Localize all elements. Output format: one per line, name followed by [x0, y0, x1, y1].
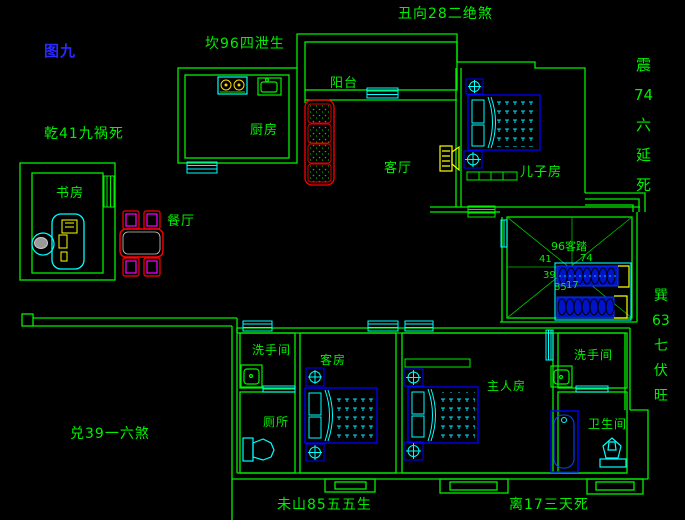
annotation-li: 离17三天死	[509, 498, 589, 512]
room-label-kitchen: 厨房	[250, 124, 278, 137]
stove	[218, 77, 247, 94]
master-bed	[408, 387, 478, 443]
figure-label: 图九	[44, 44, 76, 59]
chair	[144, 211, 160, 229]
washroom-top-window	[243, 321, 272, 331]
room-label-guest: 客房	[320, 354, 346, 366]
center-number-sw: 85	[554, 283, 567, 293]
study-chair	[32, 233, 54, 255]
roll-object	[557, 297, 614, 318]
annotation-zhen: 震 74 六 延 死	[634, 58, 653, 208]
room-label-balcony: 阳台	[330, 77, 358, 90]
center-diagram-label: 96客踏	[551, 241, 587, 252]
room-label-master: 主人房	[487, 380, 526, 392]
annotation-dui: 兑39一六煞	[70, 427, 150, 441]
room-label-bathroom: 卫生间	[588, 418, 627, 430]
lamp-icon	[404, 442, 423, 460]
lamp-icon	[464, 151, 482, 168]
room-label-sons-room: 儿子房	[520, 166, 562, 179]
lamp-icon	[306, 368, 324, 386]
guestroom-top-window	[368, 321, 398, 331]
room-label-living: 客厅	[384, 162, 412, 175]
center-number-nw: 41	[539, 255, 552, 265]
sons-bed	[468, 95, 540, 150]
center-number-w: 39	[543, 271, 556, 281]
pillow-bracket	[614, 296, 627, 318]
guest-bed	[305, 388, 377, 443]
room-label-toilet: 厕所	[263, 416, 289, 428]
annotation-chou: 丑向28二绝煞	[398, 7, 493, 21]
room-label-washroom-right: 洗手间	[574, 349, 613, 361]
lamp-icon	[404, 369, 423, 386]
door-sill-left	[263, 386, 295, 392]
master-shelf	[405, 359, 470, 367]
annotation-kan: 坎96四泄生	[205, 37, 285, 51]
dining-table	[120, 229, 163, 257]
annotation-qian: 乾41九祸死	[44, 127, 124, 141]
room-label-dining: 餐厅	[167, 215, 195, 228]
pillow-bracket	[618, 266, 629, 287]
chair	[123, 211, 139, 229]
study-window	[104, 176, 114, 207]
washroom-left-sink	[241, 365, 262, 387]
lamp-icon	[466, 79, 483, 94]
dining-chairs	[123, 211, 160, 276]
master-side-window	[546, 330, 553, 360]
study-desk	[52, 214, 84, 269]
room-label-study: 书房	[56, 187, 84, 200]
toilet-right	[600, 438, 626, 467]
kitchen-sink	[258, 78, 281, 95]
toilet-left	[243, 438, 274, 461]
chair	[123, 258, 139, 276]
washroom-right-sink	[551, 366, 572, 387]
annotation-wei: 未山85五五生	[277, 498, 372, 512]
sofa	[305, 100, 334, 185]
room-label-washroom-left: 洗手间	[252, 344, 291, 356]
center-number-ne: 74	[580, 254, 593, 264]
door-sill-right	[576, 386, 608, 392]
chair	[144, 258, 160, 276]
center-number-se: 17	[566, 281, 579, 291]
bathtub	[551, 411, 578, 472]
lamp-icon	[306, 444, 324, 461]
floorplan-canvas[interactable]: 图九 坎96四泄生 丑向28二绝煞 乾41九祸死 兑39一六煞 未山85五五生 …	[0, 0, 685, 520]
master-top-window	[405, 321, 433, 331]
sons-shelf	[467, 172, 517, 180]
annotation-xun: 巽 63 七 伏 旺	[652, 289, 670, 414]
